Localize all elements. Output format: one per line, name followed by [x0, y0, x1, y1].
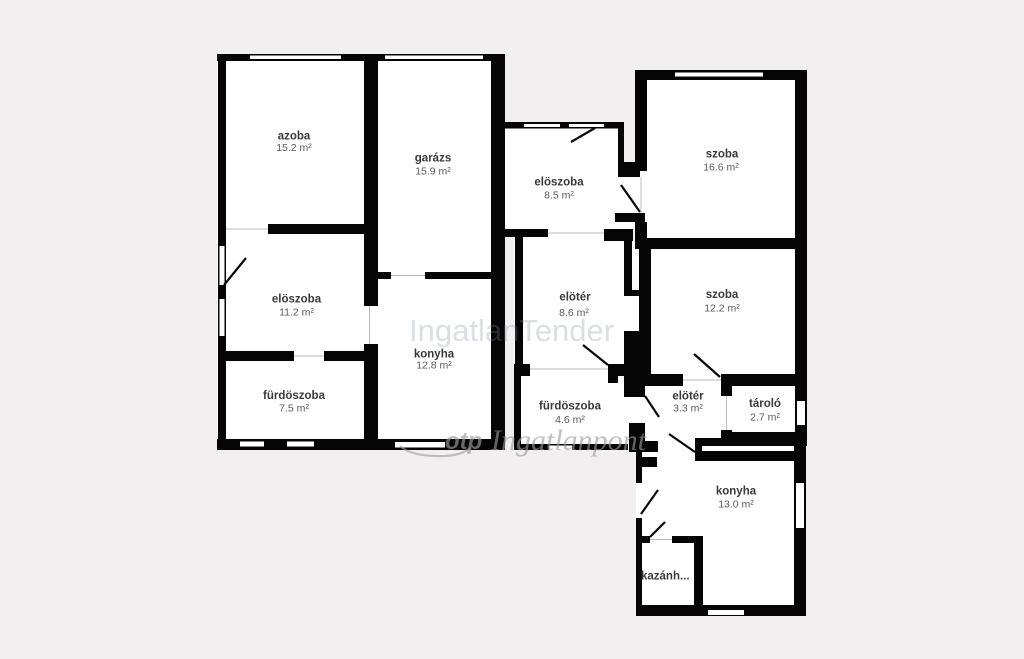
svg-text:elöszoba: elöszoba [534, 177, 584, 189]
svg-text:12.2 m²: 12.2 m² [704, 303, 740, 315]
svg-text:15.2 m²: 15.2 m² [276, 142, 312, 154]
svg-text:Ingatlanpont: Ingatlanpont [490, 424, 647, 457]
svg-text:IngatlanTender: IngatlanTender [409, 313, 614, 348]
svg-text:azoba: azoba [278, 131, 311, 143]
svg-text:garázs: garázs [415, 153, 451, 165]
svg-text:8.5 m²: 8.5 m² [544, 190, 574, 202]
svg-text:11.2 m²: 11.2 m² [279, 307, 314, 319]
svg-text:16.6 m²: 16.6 m² [703, 162, 739, 174]
svg-text:elötér: elötér [672, 391, 704, 403]
svg-text:fürdöszoba: fürdöszoba [263, 390, 326, 402]
svg-text:kazánh...: kazánh... [641, 571, 690, 583]
svg-text:elöszoba: elöszoba [272, 294, 322, 306]
svg-text:szoba: szoba [706, 289, 739, 301]
svg-text:12.8 m²: 12.8 m² [416, 360, 452, 372]
svg-text:szoba: szoba [706, 149, 739, 161]
svg-text:15.9 m²: 15.9 m² [415, 166, 451, 178]
svg-text:13.0 m²: 13.0 m² [718, 499, 754, 511]
svg-text:fürdöszoba: fürdöszoba [539, 401, 602, 413]
svg-text:3.3 m²: 3.3 m² [673, 403, 703, 415]
svg-text:2.7 m²: 2.7 m² [750, 412, 780, 424]
svg-text:tároló: tároló [749, 398, 781, 410]
svg-text:konyha: konyha [716, 486, 757, 498]
svg-text:elötér: elötér [559, 292, 591, 304]
svg-text:7.5 m²: 7.5 m² [279, 403, 309, 415]
